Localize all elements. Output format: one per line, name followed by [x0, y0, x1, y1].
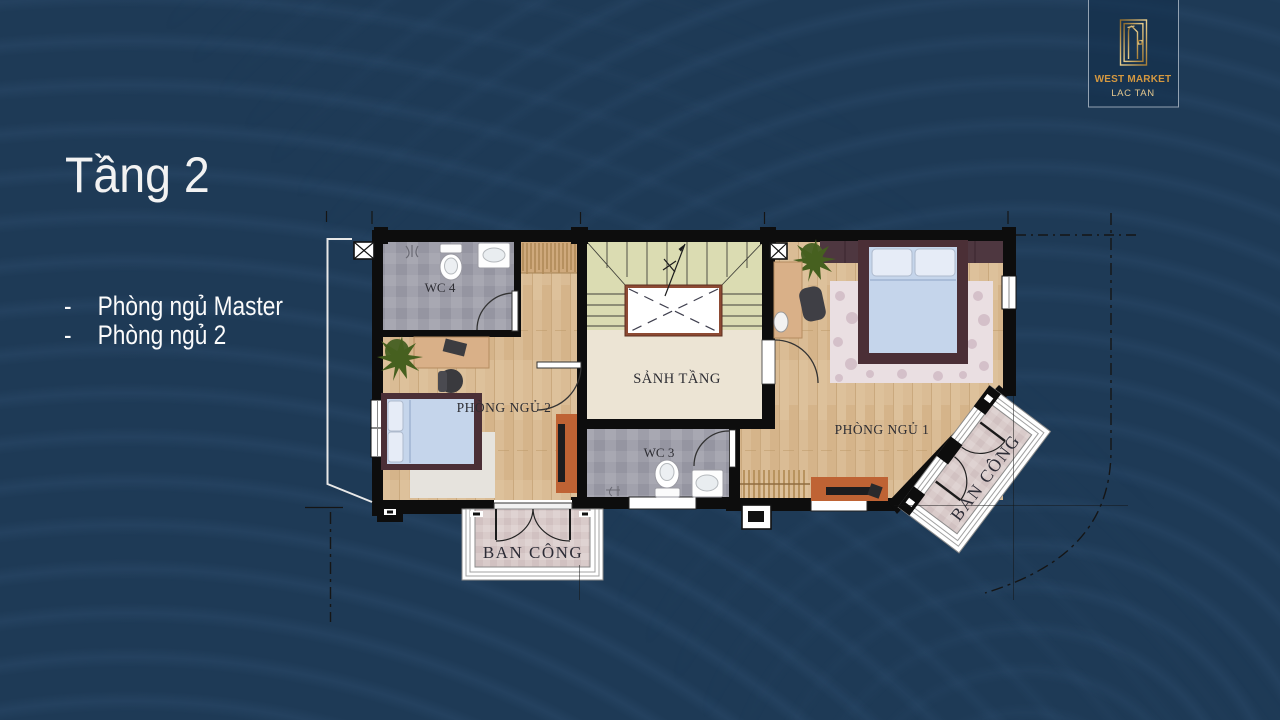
svg-text:PHÒNG NGỦ 2: PHÒNG NGỦ 2 — [457, 400, 552, 415]
svg-text:WC 3: WC 3 — [644, 445, 675, 460]
svg-text:LAC TAN: LAC TAN — [1111, 88, 1154, 99]
svg-text:PHÒNG NGỦ 1: PHÒNG NGỦ 1 — [835, 422, 930, 437]
svg-text:BAN CÔNG: BAN CÔNG — [483, 543, 583, 562]
svg-text:WC 4: WC 4 — [425, 280, 456, 295]
svg-text:SẢNH TẦNG: SẢNH TẦNG — [633, 370, 721, 387]
svg-text:WEST MARKET: WEST MARKET — [1095, 74, 1172, 85]
